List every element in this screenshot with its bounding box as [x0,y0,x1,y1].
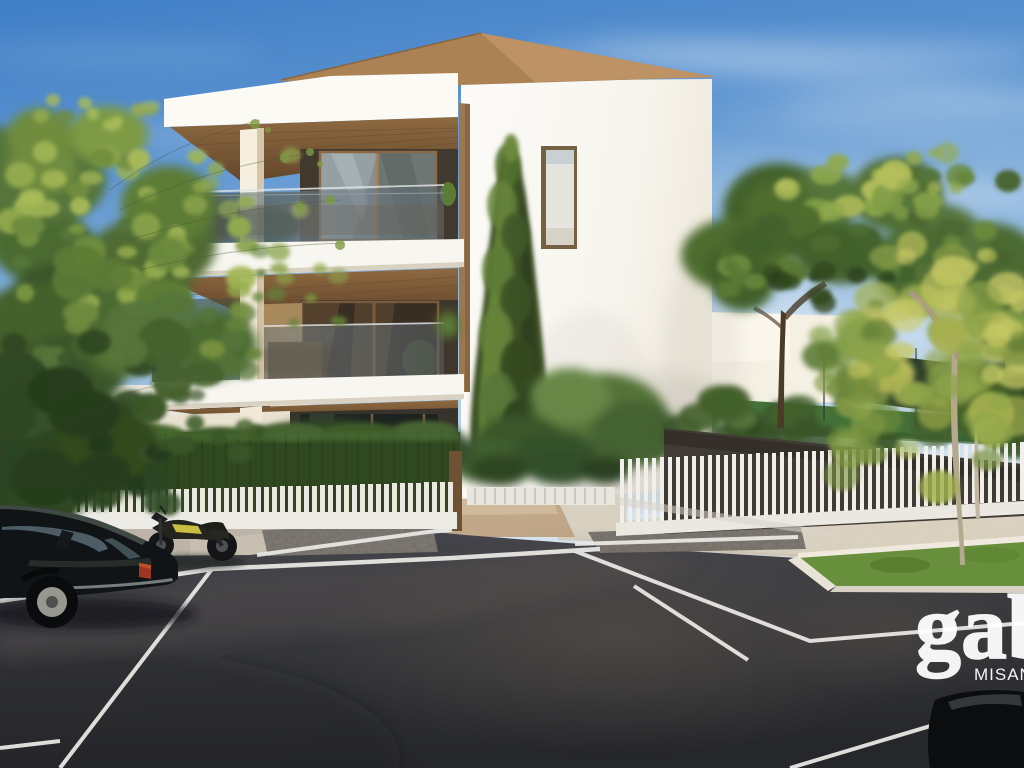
svg-text:MISANO: MISANO [974,665,1024,684]
svg-text:gab: gab [915,576,1024,678]
